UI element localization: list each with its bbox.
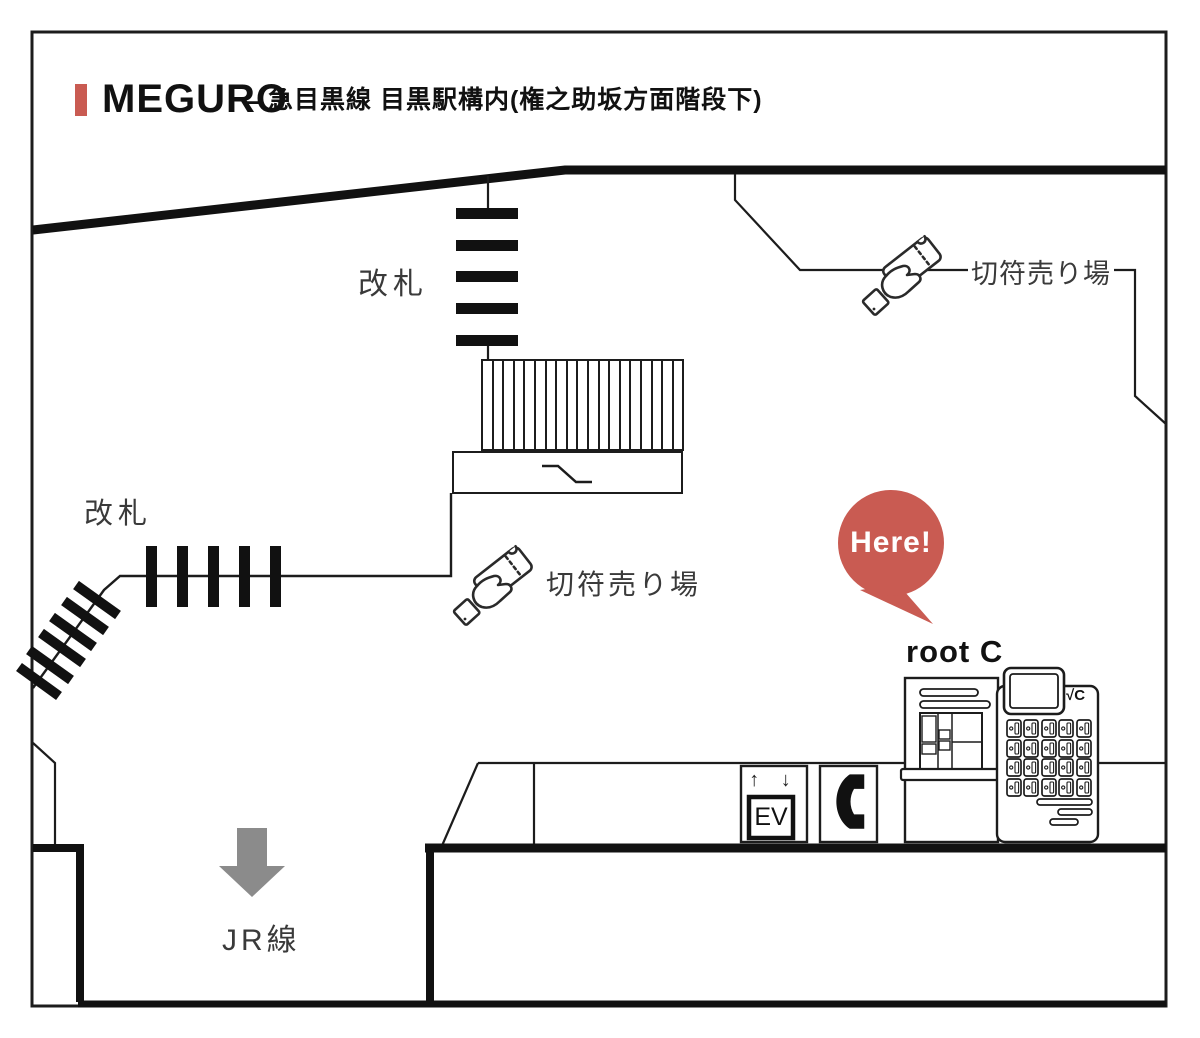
- rootc-label: root C: [906, 636, 1003, 667]
- rootc-logo: √C: [1066, 688, 1085, 703]
- gate-label-top: 改札: [358, 270, 428, 300]
- ticket-office-label-center: 切符売り場: [546, 571, 701, 599]
- floor-plan-drawing: [0, 0, 1200, 1038]
- ticket-hand-icon-center: [453, 546, 533, 626]
- ticket-office-label-top: 切符売り場: [968, 261, 1114, 288]
- stairs: [453, 360, 683, 493]
- title-line-info: 急目黒線 目黒駅構内(権之助坂方面階段下): [268, 88, 763, 113]
- map-border: [32, 32, 1166, 1006]
- ticket-office-top-wall: [735, 174, 1166, 424]
- title-accent-bar: [75, 84, 87, 116]
- elevator-arrows: ↑ ↓: [747, 770, 801, 790]
- elevator-label: EV: [749, 797, 793, 838]
- title-separator: –: [245, 87, 261, 115]
- ticket-hand-icon-top: [862, 236, 942, 316]
- left-lower-wall: [33, 743, 55, 848]
- jr-line-label: JR線: [222, 926, 301, 956]
- stairs-landing: [453, 452, 682, 493]
- bottom-walls: [33, 848, 1166, 1004]
- here-badge-text: Here!: [838, 528, 944, 558]
- slope-symbol: [542, 466, 592, 482]
- station-map: MEGURO – 急目黒線 目黒駅構内(権之助坂方面階段下) 改札 改札 切符売…: [0, 0, 1200, 1038]
- phone-icon: [820, 766, 877, 842]
- top-wall: [33, 170, 1166, 230]
- top-gate-bars: [456, 208, 518, 346]
- jr-arrow-icon: [219, 828, 285, 897]
- gate-label-left: 改札: [84, 500, 152, 529]
